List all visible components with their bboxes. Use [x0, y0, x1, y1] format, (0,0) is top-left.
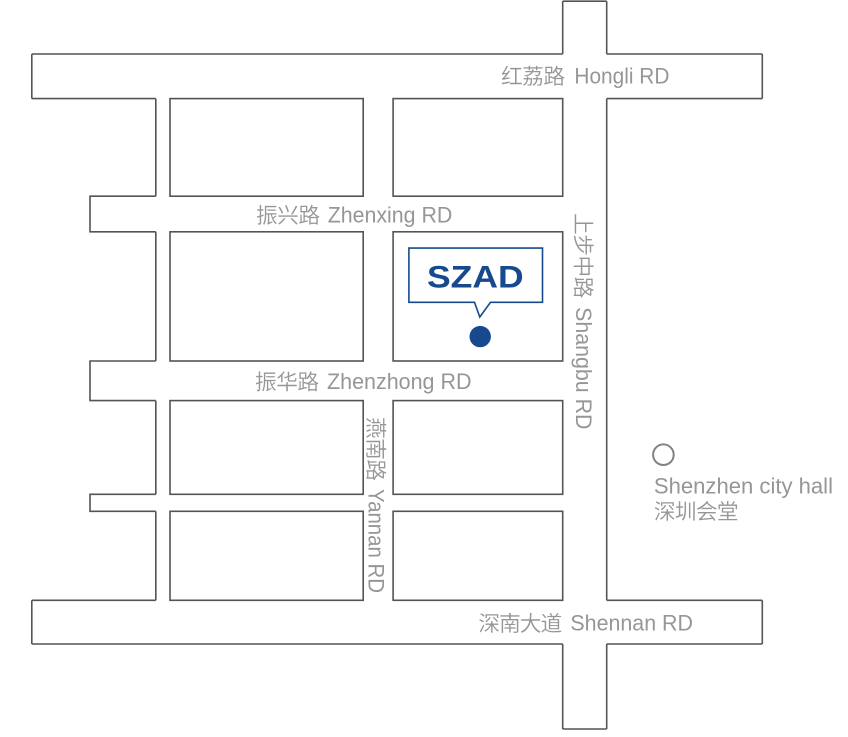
svg-text:Shennan RD: Shennan RD — [570, 611, 693, 636]
svg-text:Hongli RD: Hongli RD — [574, 64, 669, 89]
svg-text:Zhenxing RD: Zhenxing RD — [328, 203, 453, 228]
svg-text:Shangbu RD: Shangbu RD — [571, 307, 596, 429]
svg-text:Yannan RD: Yannan RD — [364, 489, 389, 593]
svg-text:SZAD: SZAD — [427, 258, 524, 294]
svg-text:Zhenzhong RD: Zhenzhong RD — [327, 369, 472, 394]
svg-text:Shenzhen city hall: Shenzhen city hall — [654, 473, 833, 498]
